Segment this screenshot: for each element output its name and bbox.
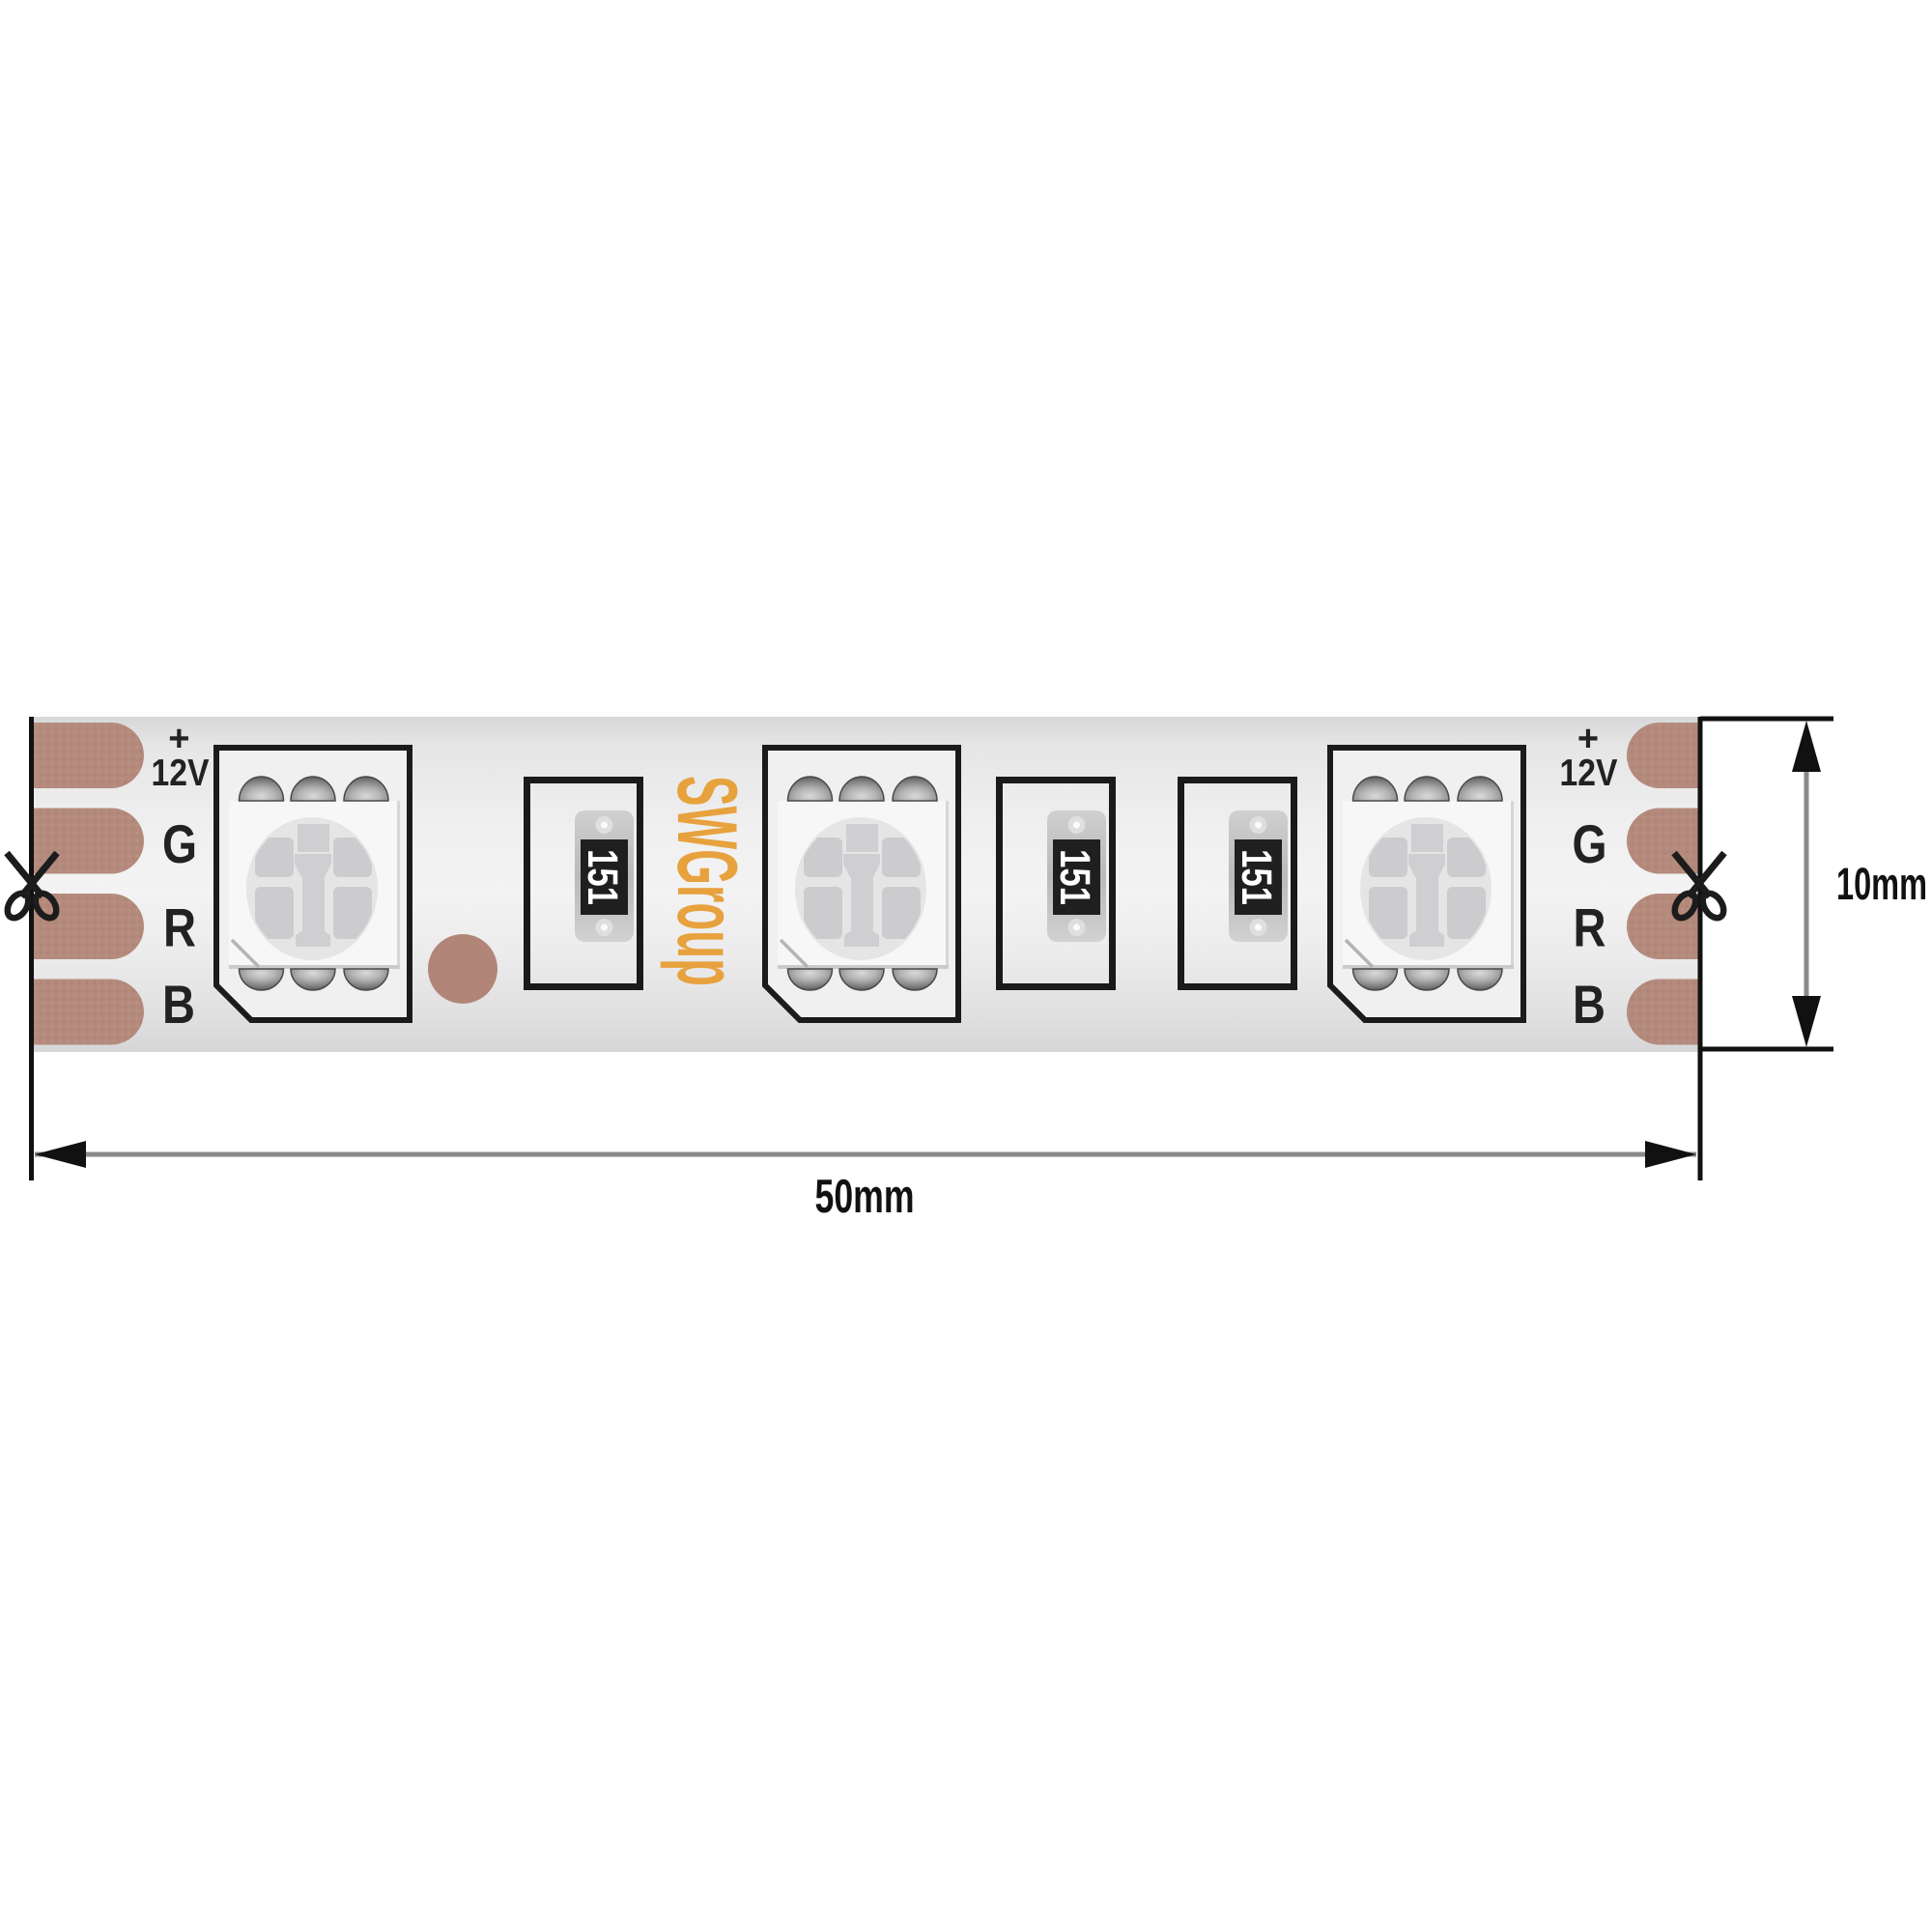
svg-text:10mm: 10mm xyxy=(1836,858,1927,909)
svg-text:B: B xyxy=(162,974,195,1035)
svg-text:12V: 12V xyxy=(152,753,210,794)
svg-text:G: G xyxy=(162,813,197,874)
svg-text:SWGroup: SWGroup xyxy=(660,776,755,986)
svg-text:50mm: 50mm xyxy=(815,1171,915,1223)
svg-text:R: R xyxy=(1574,897,1606,958)
svg-text:R: R xyxy=(163,897,196,958)
svg-text:12V: 12V xyxy=(1560,753,1618,794)
svg-text:B: B xyxy=(1573,974,1605,1035)
svg-text:G: G xyxy=(1573,813,1607,874)
